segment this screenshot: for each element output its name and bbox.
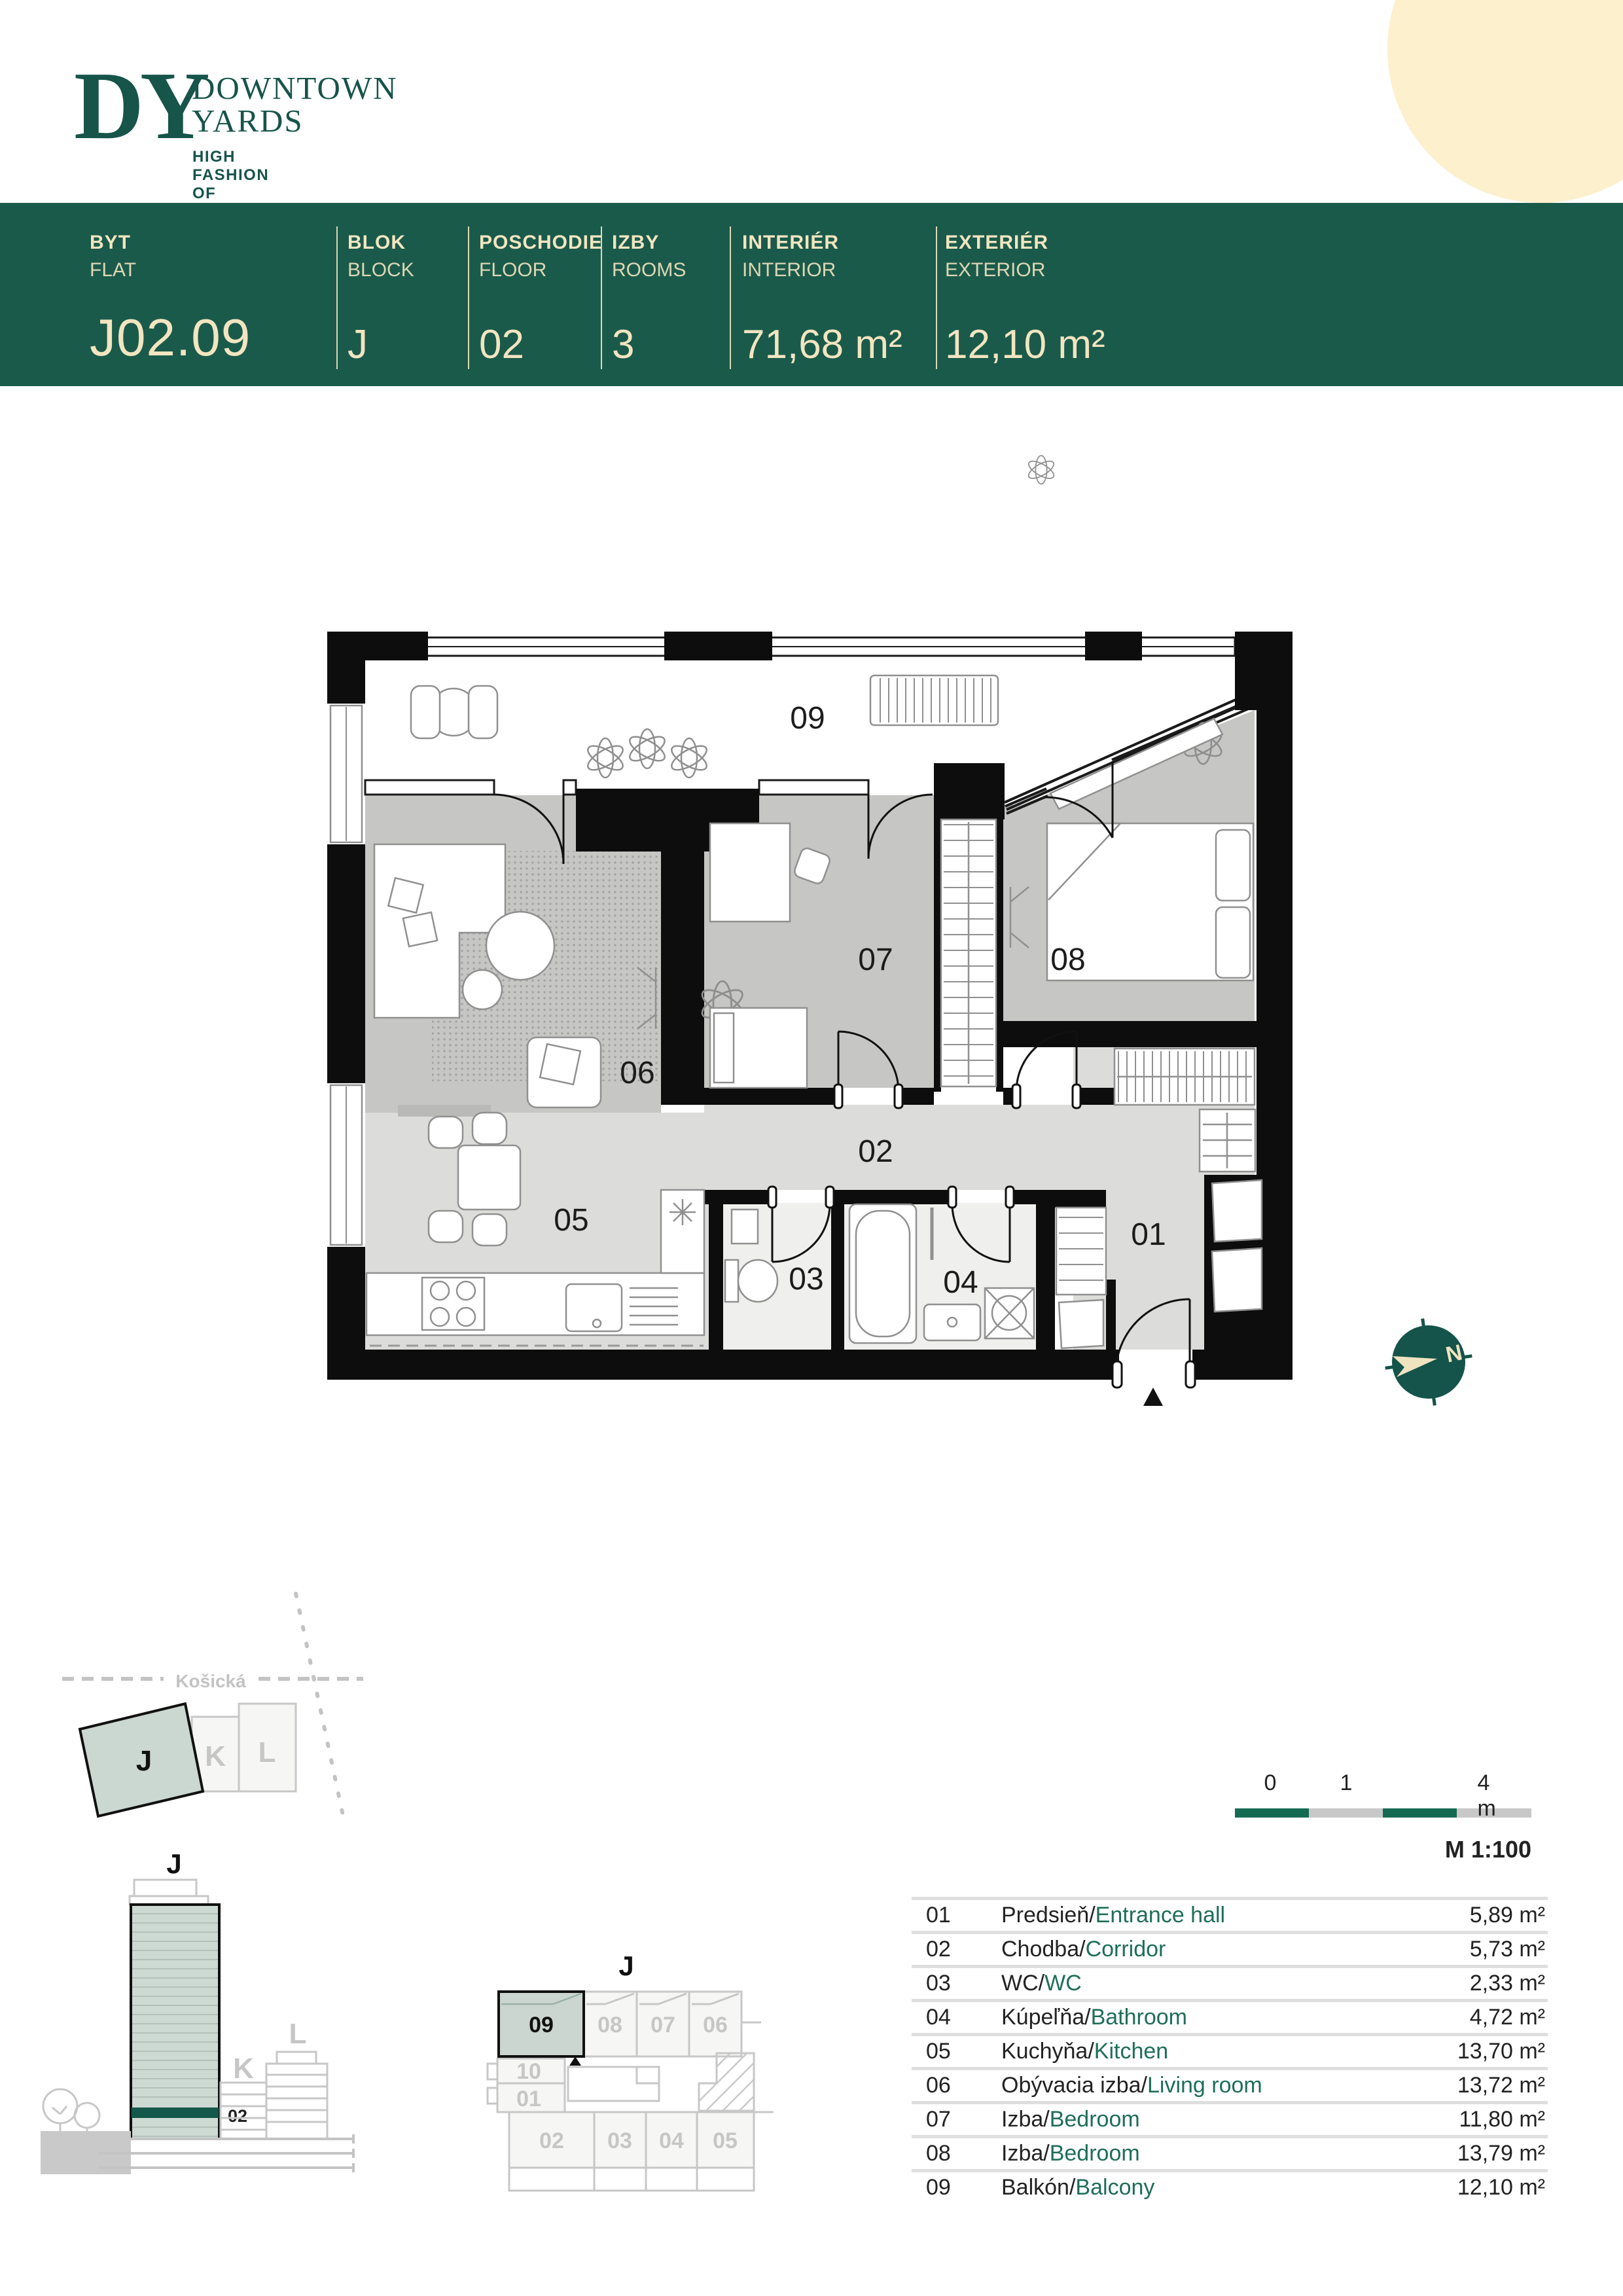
key-entrance-marker [569,2056,581,2066]
glass-wall [365,780,494,795]
street-line-2 [296,1594,344,1818]
scale-ticks: 0 1 4 m [1235,1770,1531,1801]
floor-plan: 09 06 07 08 05 02 03 04 01 N [327,628,1492,1427]
legend-room-area: 13,70 m² [1457,2039,1548,2064]
legend-room-name: Obývacia izba/Living room [1001,2073,1457,2098]
legend-room-area: 4,72 m² [1470,2005,1548,2030]
sun-lounger-slats [873,678,995,723]
glass-wall [563,780,576,795]
key-label-04: 04 [659,2128,684,2153]
appliance-symbol [669,1199,696,1225]
kitchen-counter [366,1273,704,1335]
scale-ratio: M 1:100 [1235,1836,1531,1863]
label-kitchen: 05 [554,1203,588,1238]
dining-chair [473,1113,507,1144]
floor-key-plan: J 09 08 07 06 10 [458,1931,785,2206]
legend-room-name: Chodba/Corridor [1001,1937,1470,1962]
slash: / [1089,1903,1095,1928]
hangers [1059,1210,1103,1292]
label-balcony: 09 [790,701,825,736]
toilet [738,1260,777,1302]
slash: / [1043,2141,1049,2166]
bathtub [849,1204,916,1343]
legend-name-sk: Chodba [1001,1937,1079,1962]
legend-name-sk: Kuchyňa [1001,2039,1088,2064]
divider [936,226,937,369]
slash: / [1043,2107,1049,2132]
legend-name-en: WC [1044,1971,1082,1996]
interior-area-value: 71,68 m² [742,321,902,368]
legend-room-area: 2,33 m² [1470,1971,1548,1996]
wall [664,632,772,660]
wc-basin [732,1210,758,1244]
block-value: J [348,321,368,368]
legend-row: 09Balkón/Balcony12,10 m² [912,2169,1548,2203]
legend-room-number: 03 [912,1971,1001,1996]
block-k-label: K [205,1740,226,1772]
wall-corridor-top [704,1088,838,1105]
wall-south [327,1350,1119,1380]
legend-name-sk: WC [1001,1971,1039,1996]
legend-room-area: 13,72 m² [1457,2073,1548,2098]
wall [996,818,1003,1092]
trees [43,2089,99,2132]
legend-name-sk: Izba [1001,2141,1043,2166]
sofa-pillow [388,878,423,912]
balcony-chair [411,686,440,738]
key-label-01: 01 [516,2087,541,2111]
legend-row: 07Izba/Bedroom11,80 m² [912,2101,1548,2135]
flat-sheet-page: DY DOWNTOWN YARDS HIGH FASHION OF LIVING… [0,0,1623,2296]
street-name: Košická [175,1671,246,1691]
legend-row: 01Predsieň/Entrance hall5,89 m² [912,1897,1548,1931]
dining-table [458,1145,520,1210]
wall-south [1192,1350,1270,1380]
slash: / [1069,2175,1075,2200]
dining-chair [473,1214,507,1246]
label-living: 06 [620,1056,654,1090]
building-elevation: J 02 L K [36,1833,370,2186]
legend-room-name: Izba/Bedroom [1001,2141,1457,2166]
logo-monogram: DY [74,58,206,154]
legend-room-number: 04 [912,2005,1001,2030]
glass-wall [759,780,868,795]
floor-value: 02 [479,321,524,368]
legend-room-area: 12,10 m² [1457,2175,1548,2200]
legend-name-en: Entrance hall [1096,1903,1225,1928]
legend-room-area: 13,79 m² [1457,2141,1548,2166]
legend-room-name: Balkón/Balcony [1001,2175,1457,2200]
slash: / [1079,1937,1085,1962]
legend-room-number: 09 [912,2175,1001,2200]
legend-room-area: 5,89 m² [1470,1903,1548,1928]
legend-room-number: 02 [912,1937,1001,1962]
decorative-circle [1387,0,1623,203]
key-label-03: 03 [607,2128,632,2153]
elevation-floor-label: 02 [228,2106,247,2126]
wall [899,1088,934,1105]
ground-lines [98,2134,353,2172]
key-building-label: J [618,1950,633,1981]
toilet-tank [725,1260,738,1302]
compass: N [1379,1312,1478,1411]
wall [365,632,428,660]
flat-summary-band: BYT FLAT J02.09 BLOK BLOCK J POSCHODIE F… [0,203,1623,386]
wall-kitchen-wc [709,1190,723,1350]
wall [830,1190,952,1204]
pillow [1216,830,1250,901]
wall [1106,1280,1116,1350]
slash: / [1084,2005,1090,2030]
key-label-06: 06 [703,2013,728,2037]
legend-row: 02Chodba/Corridor5,73 m² [912,1931,1548,1965]
legend-row: 04Kúpeľňa/Bathroom4,72 m² [912,1999,1548,2033]
bath-basin [924,1304,980,1340]
key-label-02: 02 [539,2128,564,2153]
legend-row: 05Kuchyňa/Kitchen13,70 m² [912,2033,1548,2067]
legend-room-name: WC/WC [1001,1971,1470,1996]
roof-structure [134,1880,196,1896]
legend-row: 06Obývacia izba/Living room13,72 m² [912,2067,1548,2101]
closet-shelf [1059,1300,1103,1348]
wall [1085,632,1142,660]
wall [1077,1088,1115,1105]
legend-name-sk: Balkón [1001,2175,1069,2200]
label-bedroom08: 08 [1050,942,1085,977]
closet-shelf [1212,1248,1262,1312]
logo-wordmark: DOWNTOWN YARDS [192,72,397,137]
block-l-label: L [259,1736,276,1768]
legend-room-number: 07 [912,2107,1001,2132]
label-bathroom: 04 [943,1265,978,1300]
room-legend: 01Predsieň/Entrance hall5,89 m²02Chodba/… [912,1897,1548,2203]
legend-row: 03WC/WC2,33 m² [912,1965,1548,1999]
legend-room-number: 06 [912,2073,1001,2098]
key-label-08: 08 [597,2013,622,2037]
key-label-10: 10 [516,2059,541,2084]
svg-text:L: L [289,2018,307,2050]
divider [730,226,731,369]
slash: / [1088,2039,1094,2064]
legend-name-sk: Izba [1001,2107,1043,2132]
legend-name-en: Bathroom [1091,2005,1187,2030]
wall [327,844,365,1083]
label-hall: 01 [1131,1217,1166,1252]
legend-room-name: Izba/Bedroom [1001,2107,1459,2132]
scale-bar: 0 1 4 m M 1:100 [1235,1770,1531,1863]
key-label-09: 09 [529,2013,554,2037]
wall-wc-bath [831,1203,844,1350]
divider [468,226,469,369]
site-plan: Košická J K L [39,1590,380,1852]
label-wc: 03 [789,1262,823,1297]
closet-shelf [1212,1180,1262,1242]
wall-bath-hall [1036,1203,1055,1350]
tower-j [131,1905,219,2139]
sofa-pillow [403,912,437,946]
legend-name-en: Balcony [1075,2175,1154,2200]
svg-text:K: K [233,2053,254,2085]
exterior-area-value: 12,10 m² [945,321,1105,368]
pillow [1216,907,1250,978]
dining-chair [429,1211,463,1242]
desk [710,823,790,922]
legend-name-en: Kitchen [1094,2039,1168,2064]
legend-name-en: Bedroom [1050,2141,1140,2166]
wall [1010,1190,1055,1204]
wall [934,818,941,1092]
slash: / [1039,1971,1044,1996]
coffee-table [486,912,554,980]
block-j-label: J [136,1745,152,1777]
wall [327,632,365,704]
key-label-07: 07 [651,2013,675,2037]
armchair-pillow [540,1044,580,1085]
divider [336,226,338,369]
rooms-value: 3 [612,321,634,368]
legend-name-sk: Predsieň [1001,1903,1089,1928]
slash: / [1141,2073,1147,2098]
legend-room-name: Kúpeľňa/Bathroom [1001,2005,1470,2030]
highlighted-floor [132,2108,219,2118]
legend-room-number: 08 [912,2141,1001,2166]
legend-room-number: 05 [912,2039,1001,2064]
legend-name-sk: Obývacia izba [1001,2073,1141,2098]
legend-room-area: 5,73 m² [1470,1937,1548,1962]
label-corridor: 02 [858,1134,893,1169]
wall-pier [934,763,1005,819]
side-table [463,970,502,1009]
entrance-marker [1143,1388,1163,1406]
key-label-05: 05 [713,2128,738,2153]
flat-number: J02.09 [90,308,251,368]
elevation-building-label: J [166,1848,181,1879]
legend-row: 08Izba/Bedroom13,79 m² [912,2135,1548,2169]
legend-room-name: Predsieň/Entrance hall [1001,1903,1470,1928]
dining-chair [429,1117,463,1148]
balcony-chair [469,686,497,738]
building-l: L [266,2018,327,2139]
legend-name-en: Bedroom [1050,2107,1140,2132]
wall-living-bedroom07 [661,852,704,1105]
legend-room-name: Kuchyňa/Kitchen [1001,2039,1457,2064]
legend-room-area: 11,80 m² [1459,2107,1548,2132]
legend-name-sk: Kúpeľňa [1001,2005,1084,2030]
wall [1055,1190,1106,1208]
legend-name-en: Living room [1147,2073,1262,2098]
pillow [714,1013,734,1083]
label-bedroom07: 07 [858,942,893,977]
building-k: K [221,2053,266,2139]
legend-room-number: 01 [912,1903,1001,1928]
legend-name-en: Corridor [1086,1937,1166,1962]
